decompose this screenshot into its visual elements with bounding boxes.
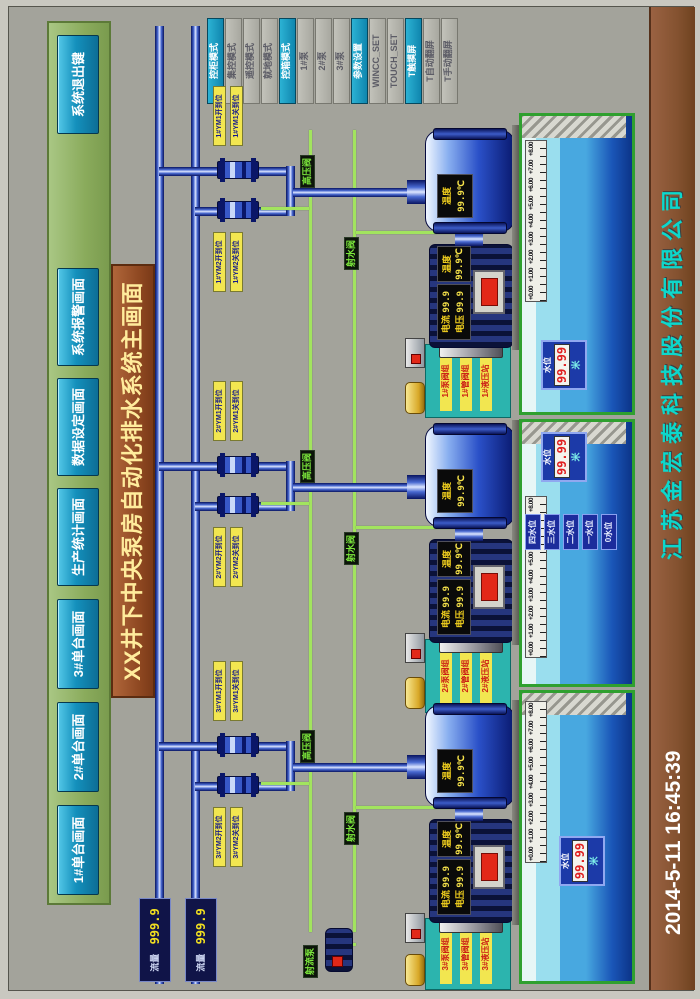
u2-motor-temp-display: 温度 99.9℃ — [437, 541, 471, 577]
jet-pump-run-light — [332, 956, 343, 967]
datetime: 2014-5-11 16:45:39 — [663, 751, 684, 935]
u3-pump-cap-left — [433, 797, 507, 809]
level-tag-3[interactable]: 三水位 — [544, 514, 560, 550]
u3-pump-cap-right — [433, 703, 507, 715]
nav-system-alarm-button[interactable]: 系统报警画面 — [57, 268, 99, 366]
sump-1-wall-hatch — [522, 116, 626, 138]
u1-pump-cap-left — [433, 222, 507, 234]
u3-jet-valve-label: 射水阀 — [344, 812, 359, 845]
u2-pump-cap-right — [433, 423, 507, 435]
u2-pump-temp-display: 温度 99.9℃ — [437, 469, 473, 513]
u1-shaft — [455, 232, 483, 246]
flow2-value: 999.9 — [195, 908, 207, 944]
u1-valve2-open-label: 1#YM2开到位 — [213, 232, 226, 292]
flow-meter-main2: 流量 999.9 — [185, 898, 217, 982]
jet-pump[interactable] — [325, 928, 353, 972]
u2-stop-button[interactable] — [473, 565, 505, 609]
u2-pump-outlet-flange — [407, 475, 427, 499]
u3-stop-button[interactable] — [473, 845, 505, 889]
u2-shaft — [455, 527, 483, 541]
u2-hydraulic-label-2: 2#管阀组 — [460, 646, 472, 706]
u3-gate-valve-1[interactable] — [217, 736, 259, 754]
u2-high-pressure-valve-label: 高压阀 — [300, 450, 315, 483]
u2-valve1-open-label: 2#YM1开到位 — [213, 381, 226, 441]
u1-pedestal — [512, 125, 519, 350]
u3-shaft — [455, 807, 483, 821]
u2-hydraulic-run-light — [411, 649, 421, 659]
u3-jet-stub-up — [261, 782, 309, 785]
u3-valve1-close-label: 3#YM1关到位 — [230, 661, 243, 721]
sump-2-level-display: 水位 99.99 米 — [541, 432, 587, 482]
flow1-label: 流量 — [151, 954, 160, 972]
u2-hydraulic-label-1: 2#泵阀组 — [440, 646, 452, 706]
nav-3-pump-screen-button[interactable]: 3#单台画面 — [57, 599, 99, 689]
footer-bar: 2014-5-11 16:45:39 江苏金宏泰科技股份有限公司 — [649, 7, 695, 990]
touch-screen-button[interactable]: T触摸屏 — [405, 18, 422, 104]
flow1-value: 999.9 — [149, 908, 161, 944]
touch-set-button[interactable]: TOUCH_SET — [387, 18, 404, 104]
u3-valve2-open-label: 3#YM2开到位 — [213, 807, 226, 867]
u1-stop-button[interactable] — [473, 270, 505, 314]
u2-pump-cap-left — [433, 517, 507, 529]
u1-high-pressure-valve-label: 高压阀 — [300, 155, 315, 188]
u2-motor-electric-display: 电流 99.9 电压 99.9 — [437, 579, 471, 635]
u1-hydraulic-motor[interactable] — [405, 338, 425, 368]
u1-gate-valve-2[interactable] — [217, 201, 259, 219]
manual-page-button[interactable]: T手动翻屏 — [441, 18, 458, 104]
u1-hydraulic-label-3: 1#液压站 — [480, 351, 492, 411]
u1-pump-temp-display: 温度 99.9℃ — [437, 174, 473, 218]
u3-hydraulic-label-2: 3#管阀组 — [460, 924, 472, 984]
mode-button-remote[interactable]: 遥控模式 — [243, 18, 260, 104]
level-tag-1[interactable]: 一水位 — [582, 514, 598, 550]
nav-production-stats-button[interactable]: 生产统计画面 — [57, 488, 99, 586]
flow2-label: 流量 — [197, 954, 206, 972]
u2-valve1-close-label: 2#YM1关到位 — [230, 381, 243, 441]
u2-hydraulic-motor[interactable] — [405, 633, 425, 663]
u1-oil-tank — [405, 382, 425, 414]
auto-page-button[interactable]: T自动翻屏 — [423, 18, 440, 104]
sump-1-level-scale: +0.00+1.00+2.00 +3.00+4.00+5.00 +6.00+7.… — [525, 140, 547, 302]
level-tag-4[interactable]: 四水位 — [525, 514, 541, 550]
param-setting-button[interactable]: 参数设置 — [351, 18, 368, 104]
nav-1-pump-screen-button[interactable]: 1#单台画面 — [57, 805, 99, 895]
u1-valve2-close-label: 1#YM2关到位 — [230, 232, 243, 292]
u1-motor-temp-display: 温度 99.9℃ — [437, 246, 471, 282]
select-pump2-button[interactable]: 2#泵 — [315, 18, 332, 104]
level-tag-0[interactable]: 0水位 — [601, 514, 617, 550]
u3-valve1-open-label: 3#YM1开到位 — [213, 661, 226, 721]
u1-hydraulic-label-1: 1#泵阀组 — [440, 351, 452, 411]
u3-gate-valve-2[interactable] — [217, 776, 259, 794]
u1-hydraulic-run-light — [411, 354, 421, 364]
mode-button-box[interactable]: 控箱模式 — [279, 18, 296, 104]
sump-3-level-scale: +0.00+1.00+2.00 +3.00+4.00+5.00 +6.00+7.… — [525, 701, 547, 863]
mode-button-local[interactable]: 就地模式 — [261, 18, 278, 104]
u1-valve1-close-label: 1#YM1关到位 — [230, 86, 243, 146]
u1-jet-valve-label: 射水阀 — [344, 237, 359, 270]
page-title: XX井下中央泵房自动化排水系统主画面 — [111, 264, 155, 698]
u3-hydraulic-motor[interactable] — [405, 913, 425, 943]
jet-pump-label: 射流泵 — [303, 945, 318, 978]
u3-hydraulic-label-1: 3#泵阀组 — [440, 924, 452, 984]
nav-data-setting-button[interactable]: 数据设定画面 — [57, 378, 99, 476]
u2-oil-tank — [405, 677, 425, 709]
company-name: 江苏金宏泰科技股份有限公司 — [662, 183, 684, 560]
u2-jet-stub-up — [261, 502, 309, 505]
u2-gate-valve-2[interactable] — [217, 496, 259, 514]
jet-water-line-upper — [309, 130, 312, 932]
level-tag-2[interactable]: 二水位 — [563, 514, 579, 550]
rotated-hmi-stage: 1#单台画面 2#单台画面 3#单台画面 生产统计画面 数据设定画面 系统报警画… — [0, 0, 700, 999]
u2-jet-valve-label: 射水阀 — [344, 532, 359, 565]
u3-pedestal — [512, 700, 519, 925]
select-pump3-button[interactable]: 3#泵 — [333, 18, 350, 104]
u3-hydraulic-run-light — [411, 929, 421, 939]
hmi-screen: 1#单台画面 2#单台画面 3#单台画面 生产统计画面 数据设定画面 系统报警画… — [8, 6, 694, 991]
u1-jet-stub-up — [261, 207, 309, 210]
u1-gate-valve-1[interactable] — [217, 161, 259, 179]
u3-motor-temp-display: 温度 99.9℃ — [437, 821, 471, 857]
sump-3-level-display: 水位 99.99 米 — [559, 836, 605, 886]
sump-1-level-display: 水位 99.99 米 — [541, 340, 587, 390]
u1-pump-outlet-flange — [407, 180, 427, 204]
u2-valve2-close-label: 2#YM2关到位 — [230, 527, 243, 587]
u2-pedestal — [512, 420, 519, 645]
u1-hydraulic-label-2: 1#管阀组 — [460, 351, 472, 411]
u1-pump-cap-right — [433, 128, 507, 140]
u1-valve1-open-label: 1#YM1开到位 — [213, 86, 226, 146]
flow-meter-main1: 流量 999.9 — [139, 898, 171, 982]
u2-hydraulic-label-3: 2#液压站 — [480, 646, 492, 706]
u3-pump-temp-display: 温度 99.9℃ — [437, 749, 473, 793]
u2-valve2-open-label: 2#YM2开到位 — [213, 527, 226, 587]
u3-valve2-close-label: 3#YM2关到位 — [230, 807, 243, 867]
u3-pump-outlet-flange — [407, 755, 427, 779]
u2-gate-valve-1[interactable] — [217, 456, 259, 474]
select-pump1-button[interactable]: 1#泵 — [297, 18, 314, 104]
u1-motor-electric-display: 电流 99.9 电压 99.9 — [437, 284, 471, 340]
u3-hydraulic-label-3: 3#液压站 — [480, 924, 492, 984]
system-exit-button[interactable]: 系统退出键 — [57, 35, 99, 134]
u3-oil-tank — [405, 954, 425, 986]
u3-motor-electric-display: 电流 99.9 电压 99.9 — [437, 859, 471, 915]
wincc-set-button[interactable]: WINCC_SET — [369, 18, 386, 104]
nav-2-pump-screen-button[interactable]: 2#单台画面 — [57, 702, 99, 792]
u3-high-pressure-valve-label: 高压阀 — [300, 730, 315, 763]
